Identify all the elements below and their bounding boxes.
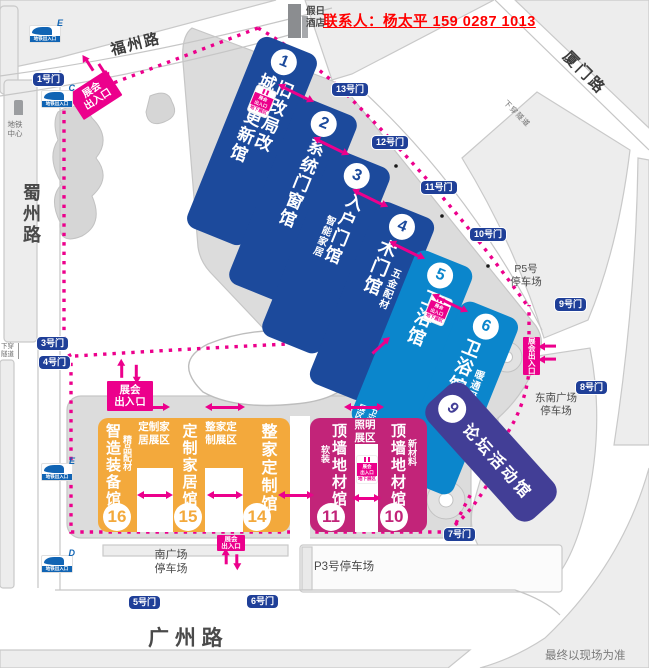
road-shuzhou: 蜀州路 <box>22 183 40 246</box>
entrance-arrow-left <box>544 345 556 348</box>
gate-11: 11号门 <box>421 181 457 194</box>
entrance-arrow-up <box>225 554 228 564</box>
hall-16-name: 智造装备馆 <box>105 423 120 508</box>
zone-whole-home: 整家定制展区 <box>203 421 239 446</box>
hall-10-sub: 新材料 <box>407 439 416 508</box>
underground-entrance-south: 展会出入口 地下展区 <box>357 456 377 483</box>
hall-16: 智造装备馆 精品配材 <box>100 423 136 508</box>
hall-14: 整家定制馆 <box>243 423 290 513</box>
disclaimer-note: 最终以现场为准 <box>545 647 626 663</box>
hall-14-name: 整家定制馆 <box>259 423 275 513</box>
underpass-label-west: 下穿隧道 <box>1 343 19 359</box>
contact-info: 联系人：杨太平 159 0287 1013 <box>323 10 536 31</box>
hall-16-sub: 精品配材 <box>122 435 131 508</box>
hall-11-number: 11 <box>317 503 345 531</box>
metro-wave-icon <box>44 92 64 100</box>
gate-10: 10号门 <box>470 228 506 241</box>
metro-entrance-E-north: E 地铁出入口 <box>29 25 61 43</box>
entrance-arrow-down <box>135 365 138 378</box>
parking-southeast: 东南广场停车场 <box>530 392 582 418</box>
hotel-name: 假日酒店 <box>306 6 325 30</box>
parking-p3: P3号停车场 <box>314 560 374 574</box>
flow-arrow <box>212 406 238 409</box>
flow-arrow <box>137 406 163 409</box>
gate-3: 3号门 <box>37 337 68 350</box>
venue-map: 1 城市更新馆 旧改局改 2 系统门窗馆 3 智能家居 入户门馆 4 木门馆 五… <box>0 0 649 668</box>
road-cut <box>290 416 310 540</box>
metro-entrance-D: D 地铁出入口 <box>41 555 73 573</box>
hall-10-number: 10 <box>380 503 408 531</box>
gate-12: 12号门 <box>372 136 408 149</box>
gate-5: 5号门 <box>129 596 160 609</box>
notch-16-15 <box>137 468 173 532</box>
flow-arrow <box>285 494 307 497</box>
hall-11: 软装 顶墙地材馆 <box>311 423 355 508</box>
metro-entrance-E-south: E 地铁出入口 <box>41 463 73 481</box>
gate-4: 4号门 <box>39 356 70 369</box>
metro-center-label: 地铁中心 <box>4 120 26 139</box>
hall-14-number: 14 <box>243 503 271 531</box>
parking-p5: P5号停车场 <box>503 263 549 289</box>
entrance-arrow-left <box>544 358 556 361</box>
gate-7: 7号门 <box>444 528 475 541</box>
flow-arrow <box>351 406 377 409</box>
notch-15-14 <box>205 468 243 532</box>
hall-15-name: 定制家居馆 <box>182 423 197 508</box>
hall-10-name: 顶墙地材馆 <box>390 423 405 508</box>
hotel-building-icon <box>288 4 301 38</box>
hall-11-name: 顶墙地材馆 <box>331 423 346 508</box>
metro-wave-icon <box>44 557 64 565</box>
gate-6: 6号门 <box>247 595 278 608</box>
metro-center-icon <box>14 100 23 115</box>
gate-9: 9号门 <box>555 298 586 311</box>
gate-13: 13号门 <box>332 83 368 96</box>
metro-entrance-C: C 地铁出入口 <box>41 90 73 108</box>
hall-9-number: 9 <box>432 389 472 429</box>
road-guangzhou: 广 州 路 <box>148 622 223 652</box>
hall-10: 顶墙地材馆 新材料 <box>379 423 427 508</box>
flow-arrow <box>359 497 374 500</box>
flow-arrow <box>144 494 166 497</box>
zone-custom-home: 定制家居展区 <box>136 421 172 446</box>
entrance-arrow-down <box>236 554 239 564</box>
zone-lighting: 照明展区 <box>353 419 377 444</box>
flow-arrow <box>214 494 236 497</box>
metro-wave-icon <box>44 465 64 473</box>
entrance-arrow-up <box>120 365 123 378</box>
hall-15: 定制家居馆 <box>172 423 206 508</box>
parking-south: 南广场停车场 <box>143 549 199 577</box>
hall-11-sub: 软装 <box>320 445 329 508</box>
gate-1: 1号门 <box>33 73 64 86</box>
hall-15-number: 15 <box>174 503 202 531</box>
metro-wave-icon <box>32 27 52 35</box>
hall-16-number: 16 <box>103 503 131 531</box>
